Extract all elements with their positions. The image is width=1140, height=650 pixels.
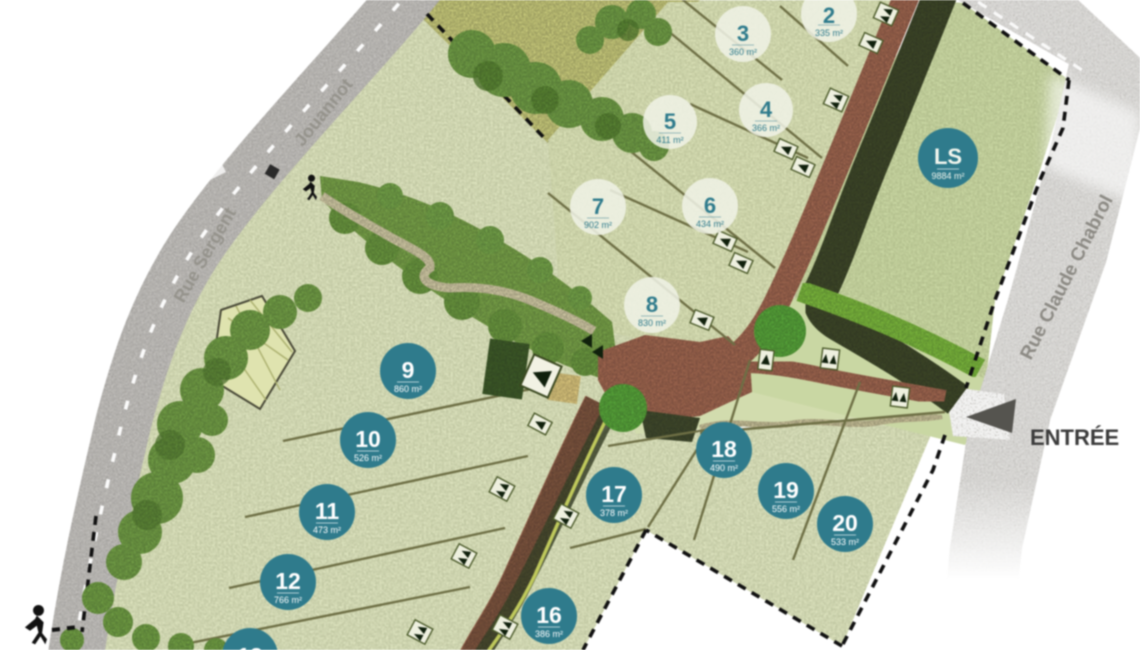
svg-text:20: 20	[832, 510, 858, 536]
svg-text:556 m²: 556 m²	[772, 504, 800, 514]
svg-text:17: 17	[601, 481, 627, 507]
svg-text:18: 18	[711, 436, 737, 462]
svg-text:11: 11	[315, 498, 340, 524]
svg-text:490 m²: 490 m²	[710, 463, 738, 473]
svg-text:766 m²: 766 m²	[274, 595, 302, 605]
svg-text:13: 13	[237, 643, 263, 650]
svg-text:2: 2	[823, 3, 835, 28]
svg-text:360 m²: 360 m²	[729, 47, 757, 57]
svg-text:9884 m²: 9884 m²	[931, 171, 964, 181]
svg-text:4: 4	[760, 97, 773, 122]
svg-text:411 m²: 411 m²	[656, 135, 683, 145]
svg-text:473 m²: 473 m²	[313, 525, 341, 535]
svg-text:8: 8	[646, 292, 658, 317]
svg-text:12: 12	[275, 568, 301, 594]
svg-text:526 m²: 526 m²	[354, 453, 382, 463]
svg-text:386 m²: 386 m²	[535, 629, 563, 639]
svg-text:366 m²: 366 m²	[752, 123, 780, 133]
svg-text:378 m²: 378 m²	[600, 508, 628, 518]
svg-text:902 m²: 902 m²	[584, 220, 612, 230]
svg-text:7: 7	[592, 194, 604, 219]
svg-text:533 m²: 533 m²	[831, 537, 859, 547]
svg-text:335 m²: 335 m²	[815, 28, 843, 38]
svg-text:10: 10	[355, 426, 381, 452]
svg-text:6: 6	[704, 193, 716, 218]
svg-text:860 m²: 860 m²	[394, 384, 422, 394]
svg-text:16: 16	[536, 602, 562, 628]
svg-text:ENTRÉE: ENTRÉE	[1030, 425, 1119, 450]
svg-text:19: 19	[773, 477, 799, 503]
svg-text:830 m²: 830 m²	[638, 318, 666, 328]
svg-text:3: 3	[737, 21, 749, 46]
svg-text:434 m²: 434 m²	[696, 219, 724, 229]
svg-text:5: 5	[664, 109, 676, 134]
svg-text:LS: LS	[934, 144, 962, 169]
svg-text:9: 9	[402, 357, 415, 383]
